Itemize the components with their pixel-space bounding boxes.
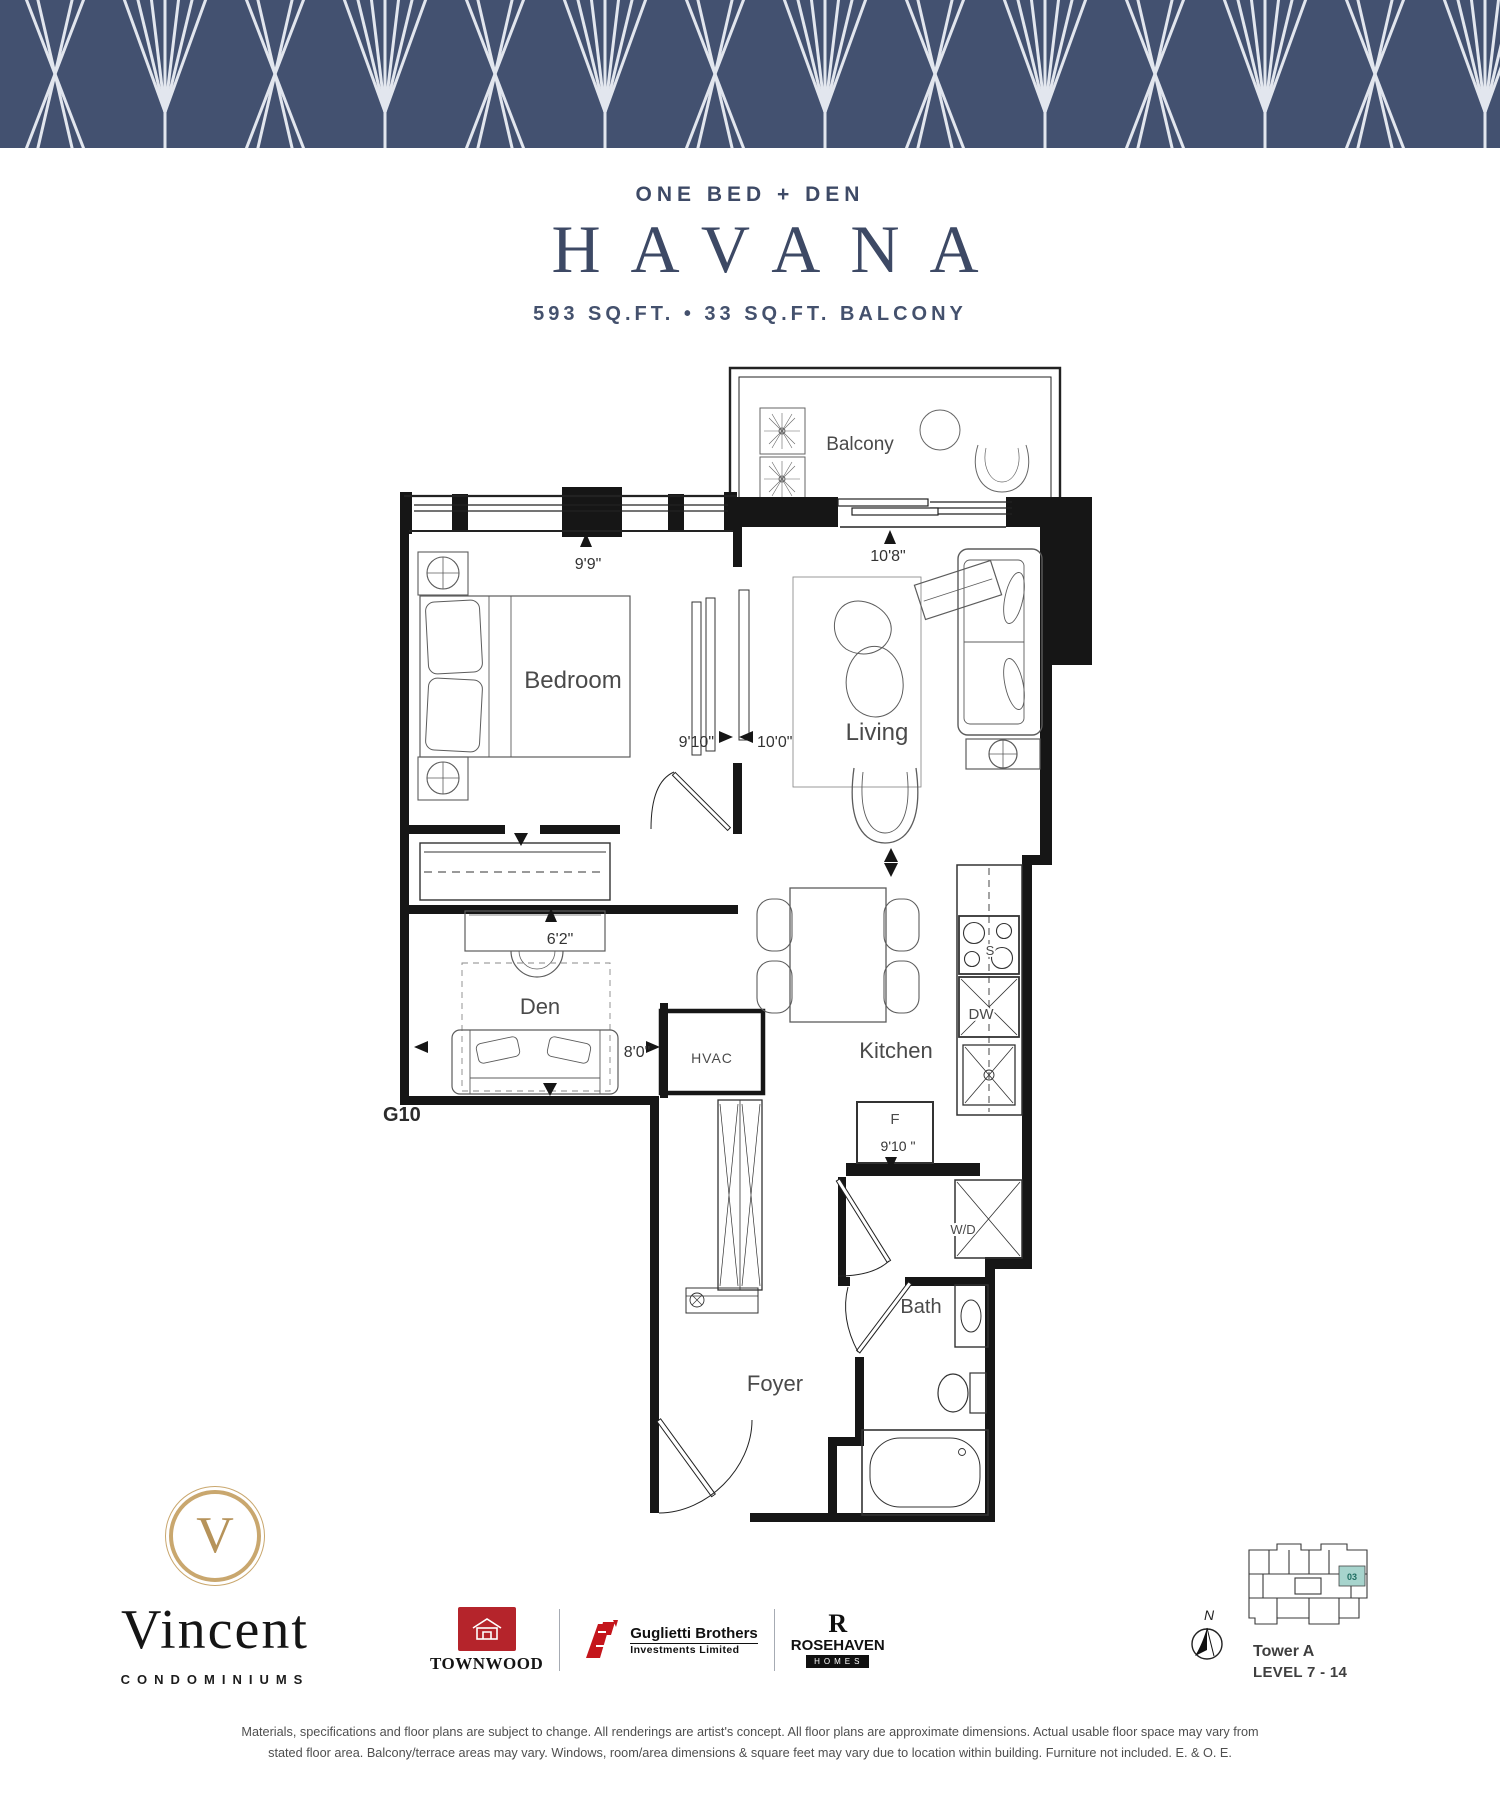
dim-bedroom-depth: 9'10" — [679, 734, 714, 751]
brand-block: V Vincent CONDOMINIUMS — [75, 1490, 355, 1687]
dim-den-desk: 6'2" — [547, 931, 574, 948]
dim-kitchen-run: 9'10 " — [881, 1138, 916, 1154]
brand-name: Vincent — [75, 1598, 355, 1662]
brand-logo-ring: V — [169, 1490, 261, 1582]
den-label: Den — [520, 994, 560, 1019]
sofa — [958, 549, 1042, 735]
hvac-label: HVAC — [691, 1050, 733, 1066]
townwood-label: TOWNWOOD — [430, 1654, 543, 1674]
brand-monogram: V — [196, 1510, 234, 1562]
foyer-label: Foyer — [747, 1371, 803, 1396]
dining-set — [757, 888, 919, 1022]
guglietti-gb-icon — [576, 1618, 620, 1662]
plan-name-title: HAVANA — [0, 210, 1500, 289]
washer-dryer-box — [955, 1180, 1022, 1258]
bathtub — [862, 1430, 988, 1515]
balcony-label: Balcony — [826, 434, 894, 455]
bedroom-door — [651, 772, 730, 830]
foyer-shelf — [686, 1288, 758, 1313]
dim-living-depth: 10'0" — [757, 734, 792, 751]
dim-den-width: 8'0" — [624, 1044, 651, 1061]
unit-type-label: ONE BED + DEN — [0, 183, 1500, 207]
keyplan-unit-label: 03 — [1347, 1572, 1357, 1582]
guglietti-label-1: Guglietti Brothers — [630, 1625, 758, 1642]
toilet — [938, 1373, 986, 1413]
den-rug — [462, 963, 610, 1091]
compass-icon: N — [1183, 1606, 1231, 1666]
fridge-label: F — [890, 1111, 899, 1128]
balcony-table-chair — [920, 410, 1029, 492]
bath-label: Bath — [900, 1296, 941, 1318]
bath-vanity — [955, 1285, 988, 1347]
living-label: Living — [846, 719, 909, 746]
accent-chair — [852, 768, 918, 843]
guglietti-label-2: Investments Limited — [630, 1643, 758, 1656]
header-deco-pattern — [0, 0, 1500, 148]
rosehaven-monogram: R — [828, 1612, 847, 1635]
level-label: LEVEL 7 - 14 — [1253, 1663, 1347, 1683]
den-desk — [465, 911, 605, 977]
builder-logos-row: TOWNWOOD Guglietti Brothers Investments … — [430, 1598, 1020, 1682]
balcony-planters — [760, 408, 805, 502]
guglietti-logo: Guglietti Brothers Investments Limited — [576, 1618, 758, 1662]
dimension-arrows — [414, 530, 898, 1170]
den-sofa — [452, 1030, 618, 1094]
wd-label: W/D — [950, 1222, 975, 1237]
logo-separator — [774, 1609, 775, 1671]
svg-text:N: N — [1204, 1607, 1215, 1623]
dim-living-window: 10'8" — [870, 548, 905, 565]
stove-label: S — [986, 943, 995, 958]
bedroom-label: Bedroom — [524, 667, 621, 694]
dw-label: DW — [969, 1006, 995, 1023]
tower-level-block: Tower A LEVEL 7 - 14 — [1253, 1642, 1347, 1682]
rosehaven-logo: R ROSEHAVEN HOMES — [791, 1612, 885, 1667]
unit-code-label: G10 — [383, 1104, 421, 1126]
dim-bedroom-window: 9'9" — [575, 556, 602, 573]
living-rug — [793, 577, 921, 787]
logo-separator — [559, 1609, 560, 1671]
coffee-table-stones — [834, 601, 903, 717]
brand-subtitle: CONDOMINIUMS — [75, 1672, 355, 1687]
rosehaven-sub-label: HOMES — [806, 1655, 869, 1668]
disclaimer-text: Materials, specifications and floor plan… — [235, 1722, 1265, 1764]
townwood-logo: TOWNWOOD — [430, 1607, 543, 1674]
kitchen-counter — [957, 865, 1022, 1115]
kitchen-label: Kitchen — [859, 1038, 932, 1063]
townwood-house-icon — [458, 1607, 516, 1651]
hall-closet — [718, 1100, 762, 1290]
balcony-sliding-door — [838, 499, 938, 515]
bedroom-closet — [420, 843, 610, 900]
entry-door — [657, 1419, 752, 1513]
nightstands — [418, 552, 468, 800]
rosehaven-label: ROSEHAVEN — [791, 1637, 885, 1654]
side-table-lamp — [966, 739, 1040, 769]
bedroom-sliding-panels — [692, 590, 749, 755]
floor-plan: Balcony Bedroom Living Den Kitchen Foyer… — [330, 318, 1120, 1548]
tower-label: Tower A — [1253, 1642, 1347, 1663]
keyplan: 03 — [1243, 1540, 1373, 1634]
